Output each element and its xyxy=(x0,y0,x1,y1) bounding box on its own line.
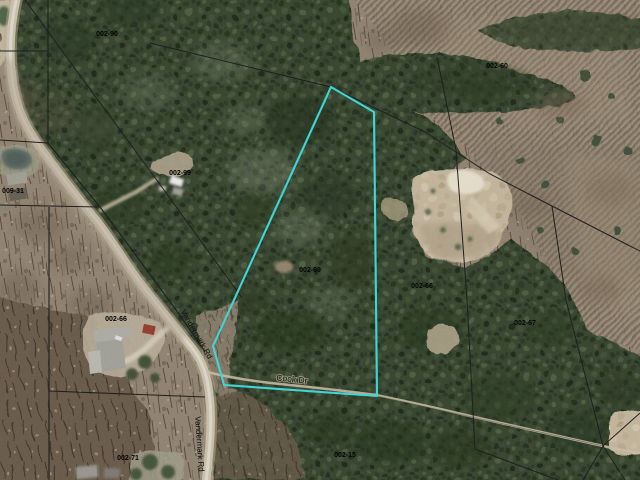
svg-text:002-99: 002-99 xyxy=(169,170,191,177)
svg-text:002-66: 002-66 xyxy=(105,316,127,323)
svg-text:002-67: 002-67 xyxy=(514,320,536,327)
svg-text:002-90: 002-90 xyxy=(96,31,118,38)
svg-text:002-60: 002-60 xyxy=(486,63,508,70)
svg-text:002-69: 002-69 xyxy=(299,267,321,274)
svg-text:002-66: 002-66 xyxy=(411,283,433,290)
svg-text:002-15: 002-15 xyxy=(334,452,356,459)
svg-text:002-71: 002-71 xyxy=(117,455,139,462)
svg-text:009-31: 009-31 xyxy=(2,188,24,195)
